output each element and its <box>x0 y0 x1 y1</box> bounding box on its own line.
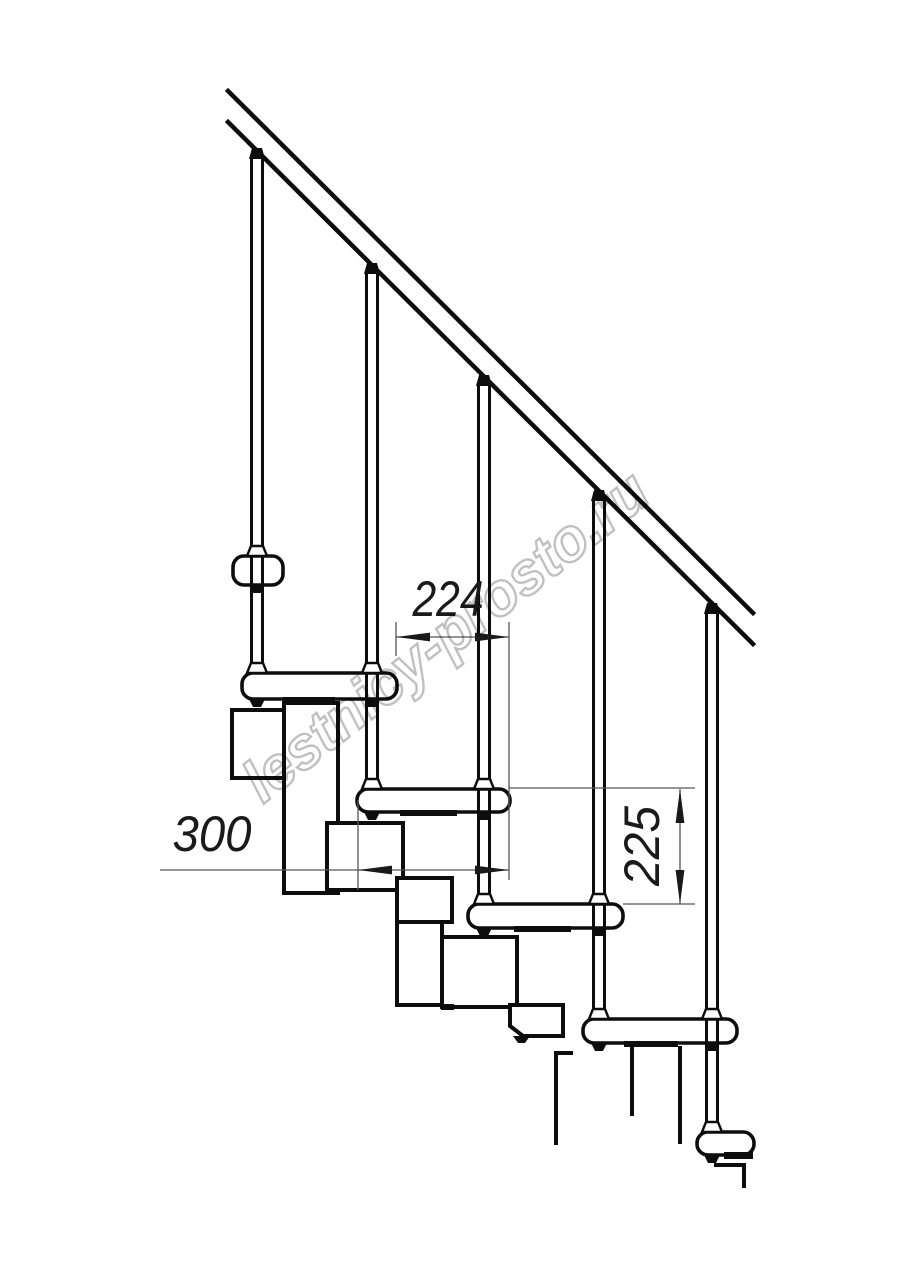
under-tread-band <box>400 810 457 816</box>
under-tread-band <box>514 926 571 932</box>
arrowhead-up-icon <box>676 789 685 823</box>
baluster-collar <box>702 1122 722 1132</box>
spine-module-6 <box>510 1005 563 1036</box>
baluster-1 <box>252 159 263 673</box>
spine-edge-line-1 <box>556 1053 571 1143</box>
tread-5 <box>583 1019 737 1043</box>
spine-joint-wedge <box>513 1036 530 1043</box>
arrowhead-right-icon <box>475 866 509 875</box>
baluster-collar <box>362 779 382 789</box>
baluster-collar <box>702 1009 722 1019</box>
baluster-collar <box>247 663 267 673</box>
spine-joint-block <box>441 1004 454 1010</box>
spine-module-4 <box>397 922 442 1005</box>
under-tread-bolt <box>704 1155 720 1163</box>
dimension-depth-label: 300 <box>173 806 252 862</box>
spine-module-3 <box>397 878 452 922</box>
baluster-4 <box>594 501 605 1019</box>
baluster-collar <box>474 779 494 789</box>
spine-module-5 <box>442 937 517 1007</box>
under-tread-bolt <box>364 812 380 820</box>
baluster-collar <box>247 546 267 556</box>
tread-3 <box>357 789 510 812</box>
spine-module-2 <box>327 823 403 890</box>
baluster-collar <box>589 1009 609 1019</box>
arrowhead-down-icon <box>676 870 685 904</box>
baluster-5 <box>707 614 718 1132</box>
under-tread-bolt <box>249 699 265 707</box>
staircase-elevation-drawing: 224 300 225 lestnicy-prosto.ru <box>0 0 914 1280</box>
baluster-collar <box>589 894 609 904</box>
baluster-collar <box>474 894 494 904</box>
watermark-text: lestnicy-prosto.ru <box>230 457 661 815</box>
tread-4 <box>468 904 623 928</box>
under-tread-bolt <box>591 1043 607 1051</box>
technical-drawing-page: 224 300 225 lestnicy-prosto.ru <box>0 0 914 1280</box>
fittings <box>249 148 753 1163</box>
under-tread-band <box>624 1041 678 1047</box>
under-tread-bolt <box>476 928 492 936</box>
under-tread-band <box>724 1152 753 1159</box>
dimension-rise-label: 225 <box>614 806 670 887</box>
spine-bottom-corner-line <box>716 1165 744 1186</box>
tread-6 <box>697 1132 754 1155</box>
tread-1 <box>233 556 283 585</box>
